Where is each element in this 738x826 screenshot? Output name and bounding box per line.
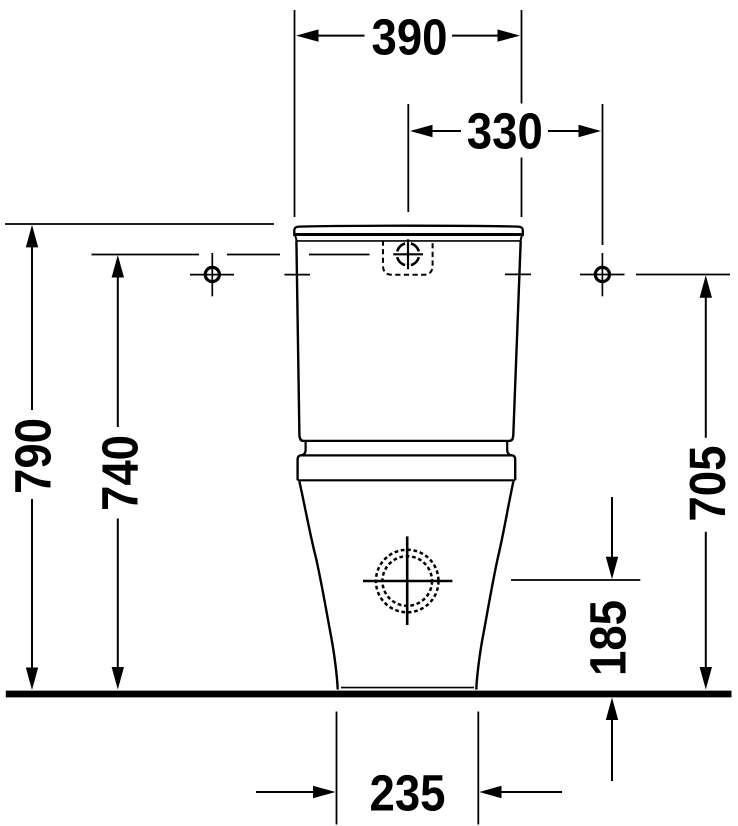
svg-text:390: 390 bbox=[372, 9, 448, 66]
svg-text:740: 740 bbox=[92, 435, 149, 511]
svg-text:235: 235 bbox=[370, 765, 446, 822]
svg-text:330: 330 bbox=[467, 102, 543, 159]
svg-text:790: 790 bbox=[5, 418, 62, 494]
svg-text:185: 185 bbox=[580, 600, 637, 676]
svg-text:705: 705 bbox=[679, 446, 736, 522]
